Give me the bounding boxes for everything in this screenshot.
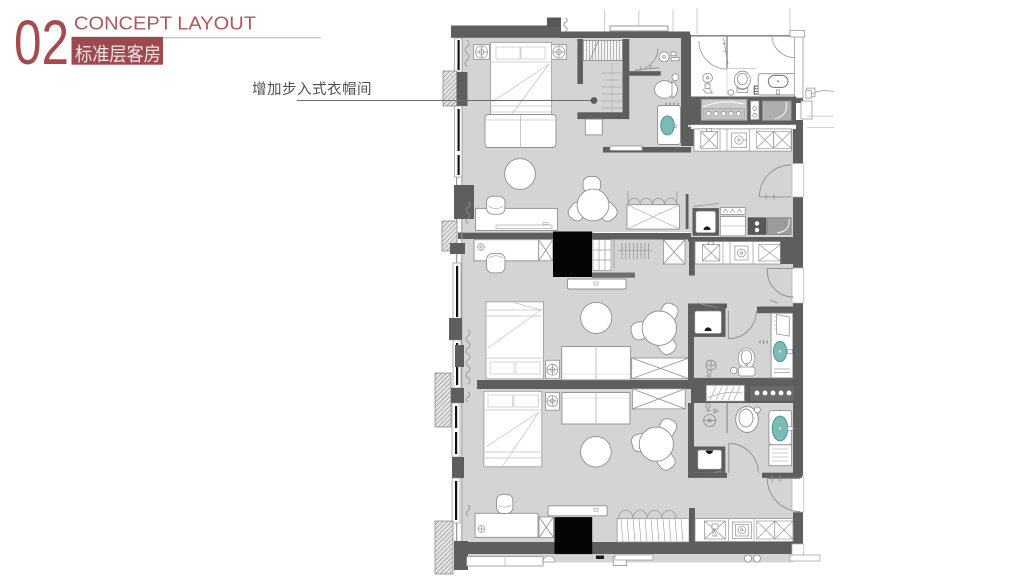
svg-text:02: 02 bbox=[14, 8, 69, 78]
svg-text:增加步入式衣帽间: 增加步入式衣帽间 bbox=[252, 81, 372, 98]
svg-text:标准层客房: 标准层客房 bbox=[75, 44, 161, 66]
svg-text:CONCEPT LAYOUT: CONCEPT LAYOUT bbox=[74, 13, 256, 34]
